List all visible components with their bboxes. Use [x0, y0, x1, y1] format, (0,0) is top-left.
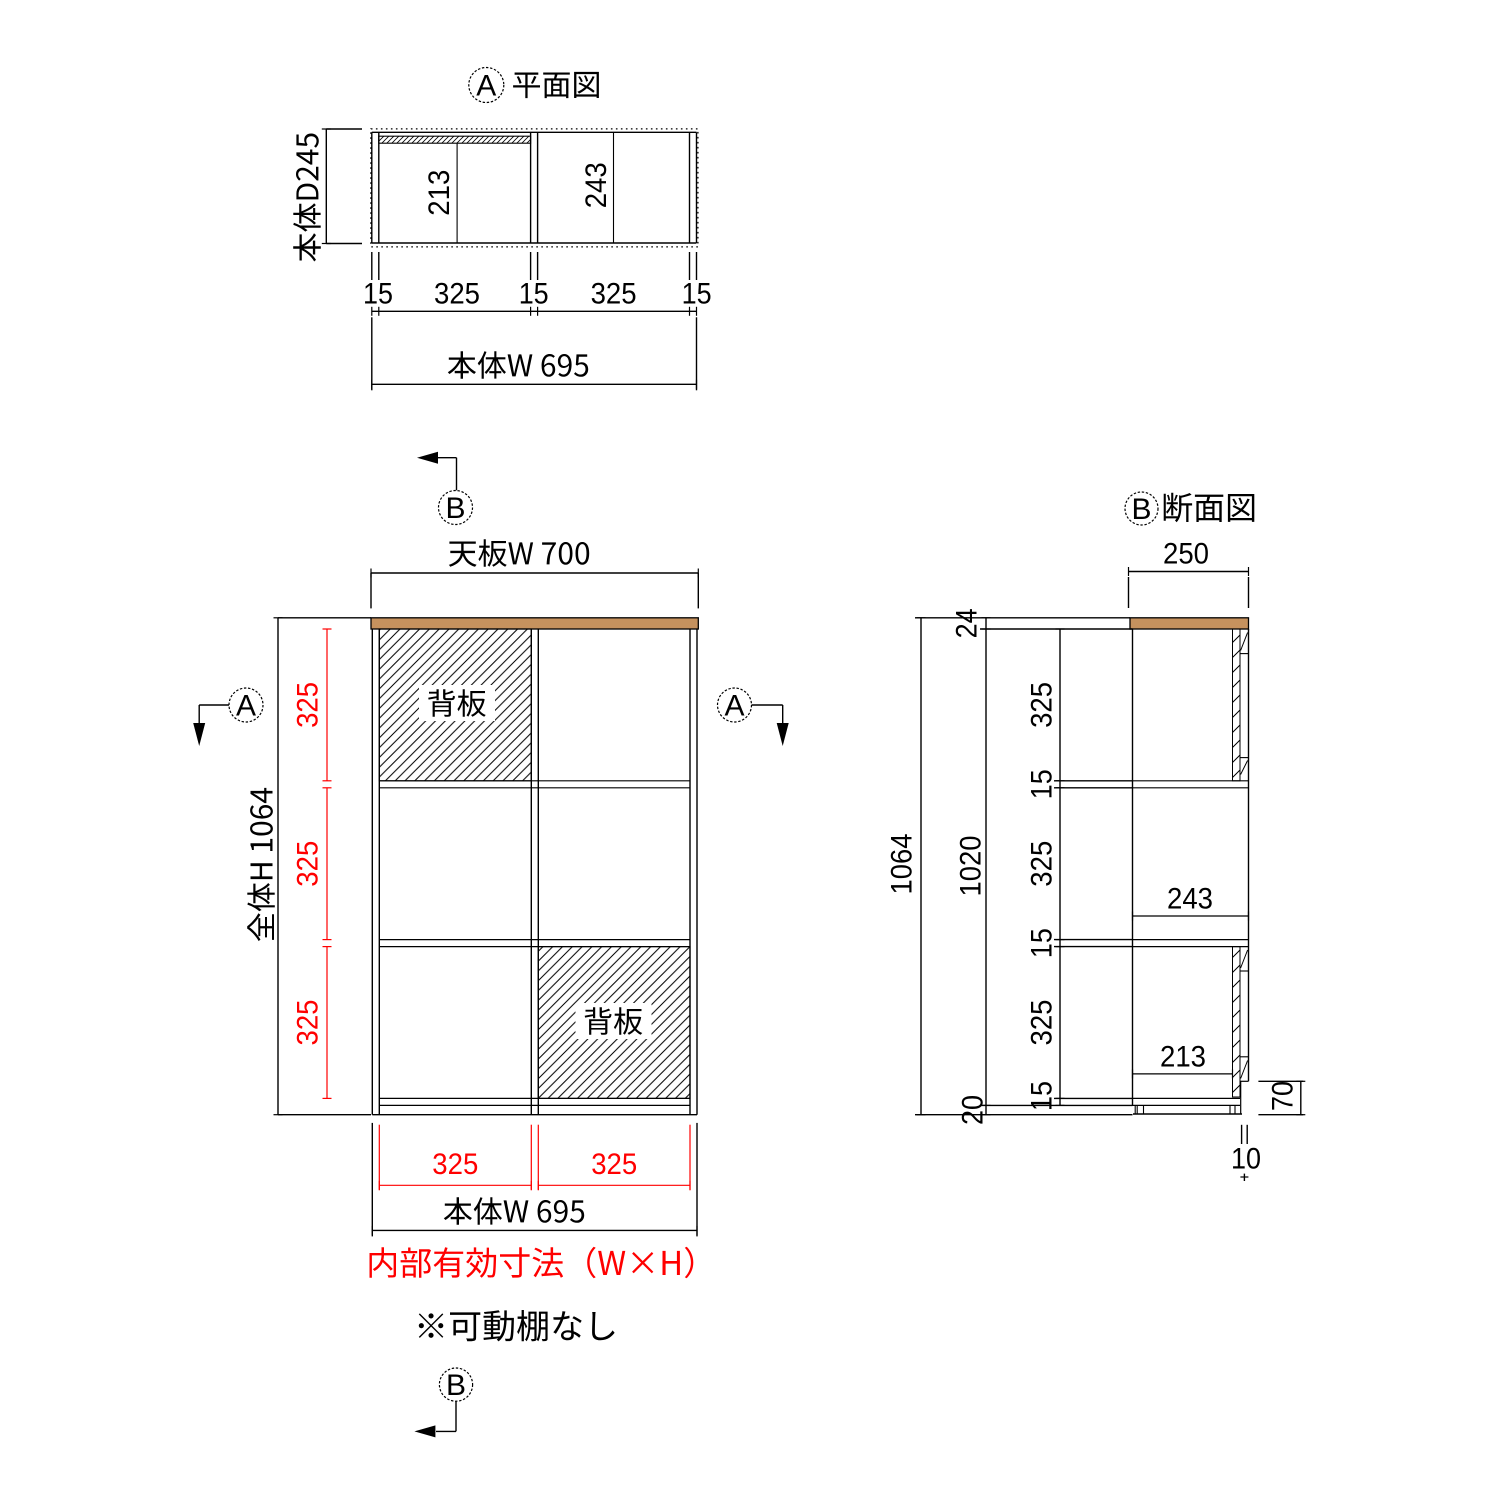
svg-text:A: A — [476, 70, 496, 103]
svg-text:15: 15 — [682, 278, 712, 311]
svg-text:325: 325 — [292, 841, 325, 887]
svg-text:325: 325 — [432, 1148, 478, 1181]
svg-text:10: 10 — [1231, 1142, 1261, 1175]
svg-text:1064: 1064 — [886, 834, 919, 895]
svg-text:15: 15 — [1026, 769, 1059, 799]
svg-text:B: B — [446, 1369, 466, 1402]
svg-text:243: 243 — [580, 162, 613, 208]
svg-text:325: 325 — [292, 682, 325, 728]
svg-text:15: 15 — [519, 278, 549, 311]
svg-text:325: 325 — [434, 278, 480, 311]
svg-text:243: 243 — [1167, 882, 1213, 915]
svg-text:B: B — [1131, 493, 1151, 526]
svg-text:213: 213 — [1160, 1041, 1206, 1074]
svg-text:325: 325 — [1026, 1000, 1059, 1046]
svg-text:20: 20 — [957, 1095, 990, 1125]
svg-text:325: 325 — [591, 278, 637, 311]
svg-text:325: 325 — [292, 1000, 325, 1046]
svg-text:325: 325 — [1026, 682, 1059, 728]
svg-text:B: B — [445, 492, 465, 525]
svg-text:24: 24 — [951, 608, 984, 638]
svg-text:70: 70 — [1267, 1081, 1300, 1111]
svg-text:15: 15 — [1026, 1081, 1059, 1111]
svg-text:325: 325 — [1026, 841, 1059, 887]
svg-text:A: A — [236, 690, 256, 723]
svg-text:15: 15 — [1026, 928, 1059, 958]
svg-text:A: A — [724, 690, 744, 723]
svg-text:1020: 1020 — [955, 836, 988, 897]
svg-text:15: 15 — [363, 278, 393, 311]
svg-text:325: 325 — [591, 1148, 637, 1181]
svg-text:213: 213 — [423, 170, 456, 216]
svg-text:250: 250 — [1163, 538, 1209, 571]
